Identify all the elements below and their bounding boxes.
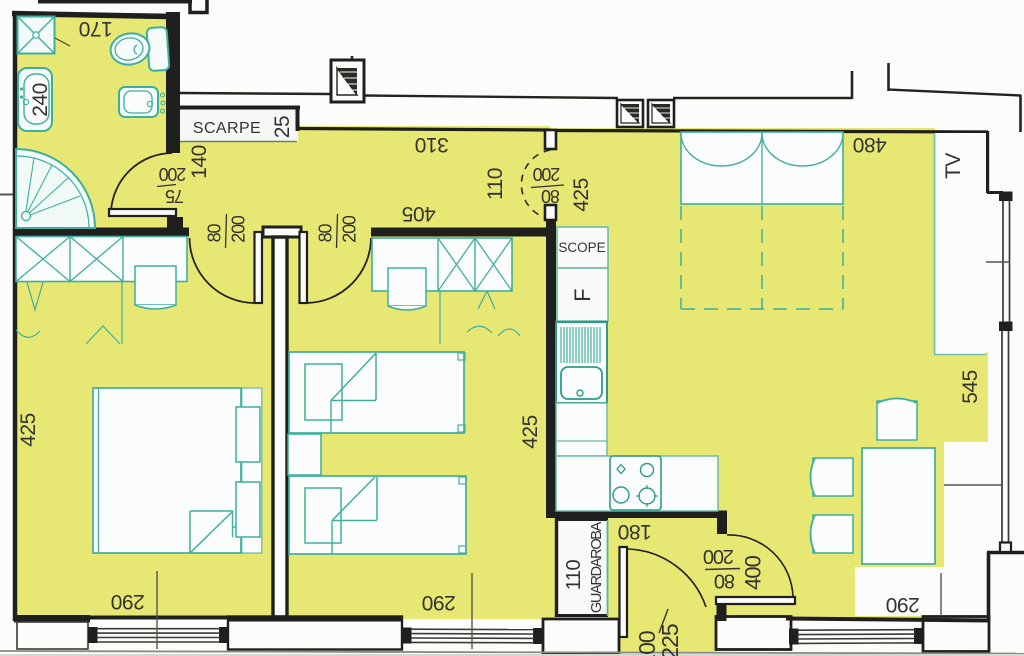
svg-text:200: 200 <box>340 215 360 243</box>
svg-text:25: 25 <box>271 116 294 138</box>
svg-text:405: 405 <box>402 202 436 225</box>
svg-text:310: 310 <box>415 133 449 156</box>
svg-text:F: F <box>570 288 595 301</box>
svg-text:225: 225 <box>657 624 683 656</box>
svg-text:290: 290 <box>111 590 145 613</box>
svg-text:290: 290 <box>886 593 920 616</box>
svg-text:SCARPE: SCARPE <box>193 120 261 137</box>
svg-text:545: 545 <box>959 370 982 404</box>
svg-text:200: 200 <box>229 215 249 243</box>
svg-text:110: 110 <box>563 559 585 590</box>
svg-text:110: 110 <box>484 168 507 200</box>
svg-text:425: 425 <box>519 415 542 449</box>
svg-text:170: 170 <box>79 17 113 40</box>
svg-text:425: 425 <box>570 178 593 212</box>
svg-text:425: 425 <box>17 413 40 447</box>
svg-text:240: 240 <box>29 83 52 117</box>
svg-text:SCOPE: SCOPE <box>558 240 605 255</box>
svg-text:75: 75 <box>165 186 184 206</box>
svg-text:200: 200 <box>159 164 187 184</box>
svg-text:GUARDAROBA: GUARDAROBA <box>589 521 605 613</box>
svg-text:400: 400 <box>741 555 766 589</box>
svg-text:200: 200 <box>533 164 561 184</box>
svg-text:80: 80 <box>316 224 336 243</box>
svg-text:80: 80 <box>714 570 735 592</box>
svg-text:80: 80 <box>541 186 560 206</box>
svg-text:480: 480 <box>853 133 887 156</box>
svg-text:200: 200 <box>703 545 734 567</box>
svg-text:TV: TV <box>942 153 965 179</box>
svg-text:80: 80 <box>205 224 225 243</box>
svg-text:290: 290 <box>422 591 456 614</box>
svg-text:180: 180 <box>618 520 652 543</box>
svg-text:140: 140 <box>188 145 211 179</box>
